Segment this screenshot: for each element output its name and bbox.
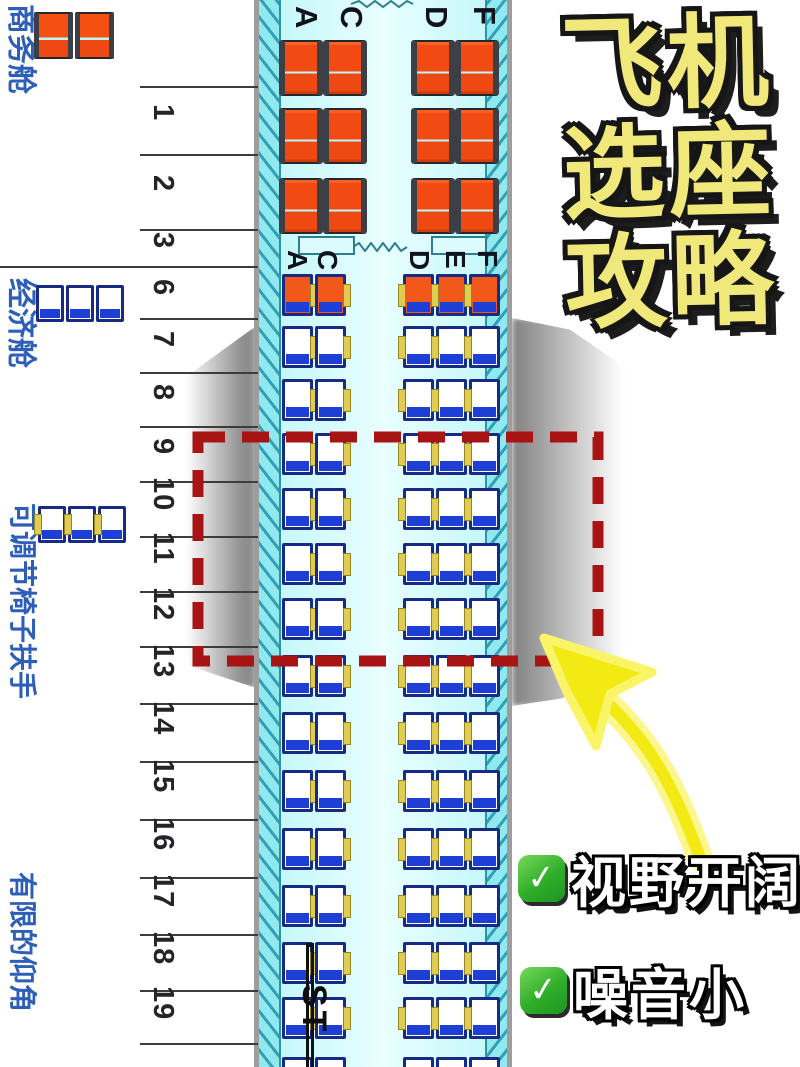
title-line-3: 攻略 (539, 225, 800, 340)
economy-seat (436, 488, 467, 530)
economy-seat (469, 997, 500, 1039)
check-icon: ✓ (520, 967, 567, 1014)
business-seat (455, 178, 499, 234)
economy-seat (469, 433, 500, 475)
row-tick (140, 229, 258, 231)
row-tick (140, 86, 258, 88)
column-letter: F (471, 250, 503, 267)
business-seat (279, 178, 323, 234)
row-number: 2 (146, 175, 179, 192)
economy-seat (403, 770, 434, 812)
economy-seat (282, 543, 313, 585)
economy-seat (436, 655, 467, 697)
economy-seat (282, 655, 313, 697)
economy-seat (469, 655, 500, 697)
economy-seat (436, 885, 467, 927)
economy-seat (469, 885, 500, 927)
row-number: 13 (146, 644, 179, 678)
economy-seat (282, 712, 313, 754)
economy-seat (282, 433, 313, 475)
economy-seat (436, 828, 467, 870)
economy-seat (403, 1057, 434, 1067)
economy-seat (403, 543, 434, 585)
row-number: 19 (146, 986, 179, 1020)
business-seat (411, 178, 455, 234)
row-number: 15 (146, 759, 179, 793)
column-letter: D (403, 250, 435, 270)
row-tick (140, 1043, 258, 1045)
economy-seat (403, 828, 434, 870)
column-letter: A (281, 250, 313, 270)
benefit-text-noise: 噪音小 (573, 950, 747, 1030)
economy-seat (436, 997, 467, 1039)
row-number: 1 (146, 104, 179, 121)
column-letter: E (439, 250, 471, 269)
economy-seat (315, 655, 346, 697)
row-number: 12 (146, 587, 179, 621)
row-tick (140, 154, 258, 156)
section-divider-line (0, 266, 258, 268)
title-line-1: 飞机 (535, 7, 799, 122)
economy-seat (436, 543, 467, 585)
benefit-text-view: 视野开阔 (571, 838, 800, 918)
benefit-row-view: ✓ 视野开阔 (518, 838, 800, 918)
economy-seat (469, 488, 500, 530)
economy-seat (469, 942, 500, 984)
economy-seat (403, 942, 434, 984)
economy-seat (403, 274, 434, 316)
economy-seat (403, 433, 434, 475)
economy-seat (436, 274, 467, 316)
title-line-2: 选座 (537, 116, 800, 231)
economy-seat (315, 488, 346, 530)
column-letter: C (311, 250, 343, 270)
row-tick (140, 426, 258, 428)
row-number: 10 (146, 477, 179, 511)
economy-seat (403, 379, 434, 421)
economy-seat (436, 942, 467, 984)
row-tick (140, 372, 258, 374)
column-letter: C (333, 6, 369, 28)
economy-seat (403, 712, 434, 754)
row-number: 3 (146, 232, 179, 249)
row-number: 6 (146, 279, 179, 296)
business-seat (455, 108, 499, 164)
economy-seat (469, 1057, 500, 1067)
column-letter: F (466, 6, 502, 25)
economy-seat (436, 433, 467, 475)
economy-seat (282, 274, 313, 316)
business-seat (279, 40, 323, 96)
economy-seat (282, 379, 313, 421)
row-number: 8 (146, 384, 179, 401)
economy-seat (403, 885, 434, 927)
column-letter: A (288, 6, 324, 28)
business-seat (411, 108, 455, 164)
economy-seat (469, 326, 500, 368)
economy-seat (315, 828, 346, 870)
economy-seat (282, 326, 313, 368)
economy-seat (469, 543, 500, 585)
economy-seat (469, 712, 500, 754)
row-tick (140, 318, 258, 320)
economy-seat (315, 770, 346, 812)
economy-seat (469, 770, 500, 812)
economy-seat (282, 770, 313, 812)
business-seat (279, 108, 323, 164)
economy-seat (436, 1057, 467, 1067)
economy-seat (469, 828, 500, 870)
economy-seat (315, 543, 346, 585)
economy-seat (282, 488, 313, 530)
economy-seat (436, 598, 467, 640)
business-seat (323, 40, 367, 96)
row-number: 16 (146, 817, 179, 851)
economy-seat (403, 997, 434, 1039)
economy-seat (315, 379, 346, 421)
business-seat (323, 108, 367, 164)
economy-seat (436, 379, 467, 421)
economy-seat (403, 488, 434, 530)
economy-seat (315, 433, 346, 475)
row-number: 11 (146, 532, 179, 565)
row-number: 7 (146, 331, 179, 348)
row-number: 14 (146, 701, 179, 735)
economy-seat (315, 712, 346, 754)
business-seat (323, 178, 367, 234)
economy-seat (315, 942, 346, 984)
seat-selection-poster: ST 123678910111213141516171819ACDFACDEF … (0, 0, 800, 1067)
economy-seat (315, 326, 346, 368)
economy-seat (282, 828, 313, 870)
row-number: 9 (146, 438, 179, 455)
economy-seat (403, 655, 434, 697)
economy-seat (469, 274, 500, 316)
economy-seat (436, 326, 467, 368)
economy-seat (403, 598, 434, 640)
business-seat (411, 40, 455, 96)
economy-seat (315, 1057, 346, 1067)
economy-seat (315, 885, 346, 927)
watermark-text: ST (294, 984, 333, 1035)
benefit-row-noise: ✓ 噪音小 (520, 950, 747, 1030)
poster-title: 飞机 选座 攻略 (535, 7, 800, 340)
economy-seat (315, 598, 346, 640)
economy-seat (469, 379, 500, 421)
economy-seat (282, 885, 313, 927)
economy-seat (436, 770, 467, 812)
row-number: 18 (146, 931, 179, 965)
economy-seat (436, 712, 467, 754)
economy-seat (403, 326, 434, 368)
row-number: 17 (146, 874, 179, 908)
business-seat (455, 40, 499, 96)
economy-seat (315, 274, 346, 316)
economy-seat (282, 598, 313, 640)
economy-seat (469, 598, 500, 640)
column-letter: D (418, 6, 454, 28)
check-icon: ✓ (518, 855, 565, 902)
